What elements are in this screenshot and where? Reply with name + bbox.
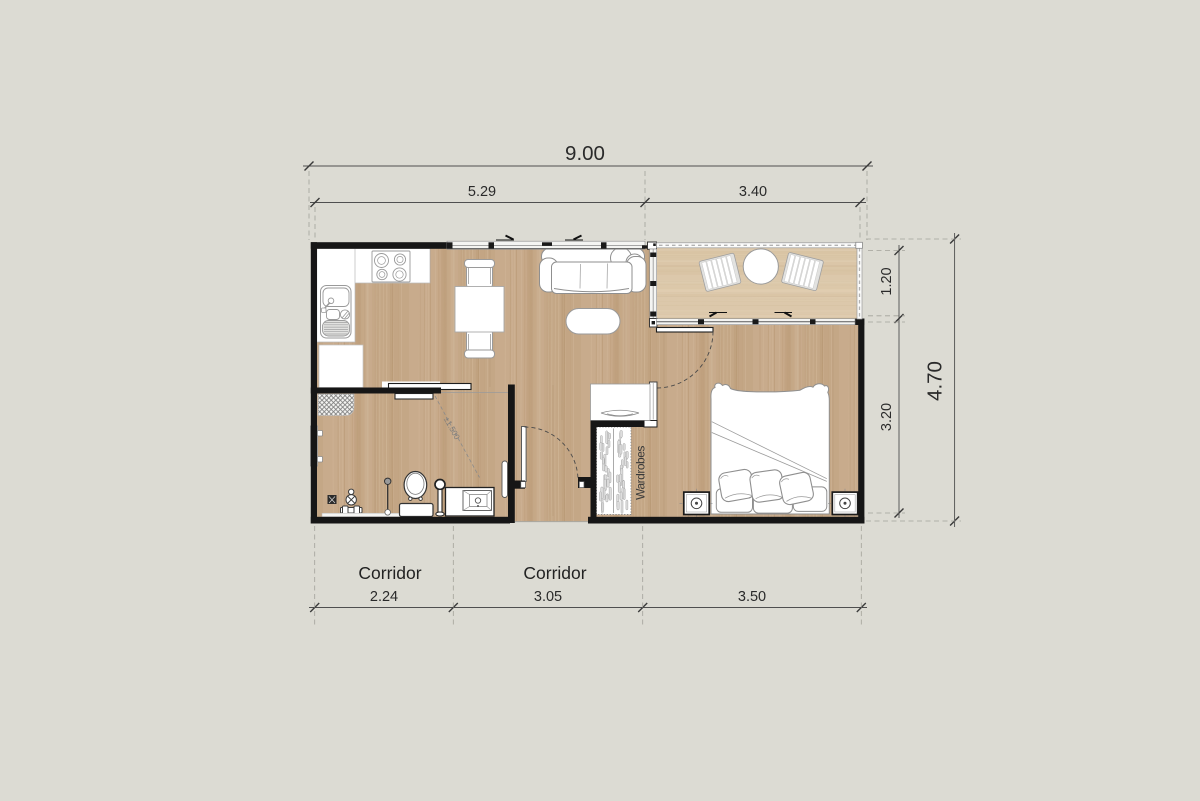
svg-text:4.70: 4.70	[924, 361, 947, 401]
svg-text:Corridor: Corridor	[358, 563, 421, 583]
svg-text:1.20: 1.20	[879, 267, 895, 295]
svg-text:9.00: 9.00	[565, 142, 605, 165]
svg-text:Corridor: Corridor	[523, 563, 586, 583]
svg-text:3.05: 3.05	[534, 589, 562, 605]
svg-text:5.29: 5.29	[468, 184, 496, 200]
svg-text:3.50: 3.50	[738, 589, 766, 605]
svg-text:3.40: 3.40	[739, 184, 767, 200]
svg-text:3.20: 3.20	[879, 403, 895, 431]
svg-text:2.24: 2.24	[370, 589, 398, 605]
svg-text:Wardrobes: Wardrobes	[634, 446, 648, 500]
